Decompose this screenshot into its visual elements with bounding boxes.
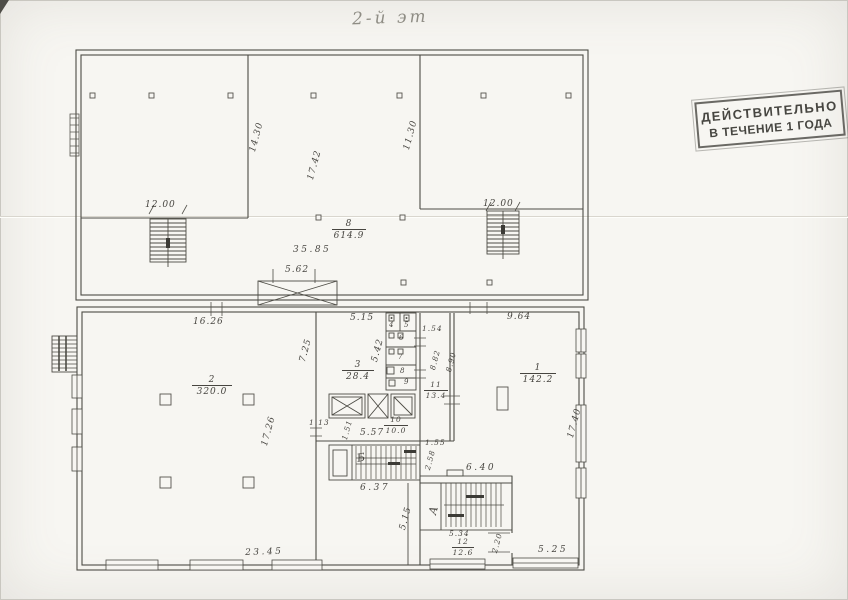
dimension-ticks-upper [149,202,520,214]
room-label-3: 3 28.4 [342,360,374,383]
cabin-4-number: 4 [389,322,393,329]
room-label-10: 10 10.0 [384,416,408,435]
stair-b-letter: Б [356,451,367,463]
room-3-number: 3 [342,360,374,370]
dim-6-40: 6.40 [466,464,496,473]
lower-columns [160,387,508,488]
fire-escape-stair [52,336,77,372]
room-label-8: 8 614.9 [332,219,366,242]
stair-upper-left [150,219,186,267]
dim-5-57: 5.57 [360,429,384,438]
room-1-number: 1 [520,363,556,373]
dim-16-26: 16.26 [193,318,224,327]
room-label-1: 1 142.2 [520,363,556,386]
cabin-8-number: 8 [400,368,404,375]
elevator-shafts [329,394,415,418]
cabin-6-number: 6 [399,335,403,342]
dim-5-62: 5.62 [285,266,309,275]
scanned-floor-plan-page: 2-й эт ДЕЙСТВИТЕЛЬНО В ТЕЧЕНИЕ 1 ГОДА 12… [0,0,848,600]
dim-9-64: 9.64 [507,313,531,322]
dim-23-45: 23.45 [245,548,284,558]
room-8-area: 614.9 [332,229,366,241]
stair-b-block [329,445,420,480]
dim-1-13: 1.13 [309,419,330,427]
plan-linework [0,0,848,600]
room-2-number: 2 [192,375,232,385]
stair-a-block [420,470,512,530]
room-label-12: 12 12.6 [452,538,474,557]
dimension-ticks-lower [211,302,510,552]
dim-12-00-right: 12.00 [483,200,514,209]
room-11-number: 11 [424,381,448,390]
dim-1-55: 1.55 [425,439,446,447]
dim-5-15-top: 5.15 [350,314,374,323]
cabin-5-number: 5 [404,322,408,329]
room-3-area: 28.4 [342,370,374,382]
room-2-area: 320.0 [192,385,232,397]
upper-columns [90,93,571,285]
cabin-7-number: 7 [398,354,402,361]
dim-5-25: 5.25 [538,546,568,555]
dim-6-37: 6.37 [360,484,390,493]
room-label-11: 11 13.4 [424,381,448,400]
room-label-2: 2 320.0 [192,375,232,398]
page-title: 2-й эт [352,7,429,30]
lower-block [77,307,584,570]
room-12-number: 12 [452,538,474,547]
room-10-area: 10.0 [384,425,408,436]
room-10-number: 10 [384,416,408,425]
stair-upper-right [487,211,519,259]
dim-12-00-left: 12.00 [145,201,176,210]
radiator-detail [70,114,79,156]
dim-35-85: 35.85 [293,246,331,255]
dim-1-54: 1.54 [422,325,443,333]
cabin-9-number: 9 [404,379,408,386]
room-1-area: 142.2 [520,373,556,385]
room-12-area: 12.6 [452,547,474,558]
room-11-area: 13.4 [424,390,448,401]
room-8-number: 8 [332,219,366,229]
upper-block [76,50,588,300]
